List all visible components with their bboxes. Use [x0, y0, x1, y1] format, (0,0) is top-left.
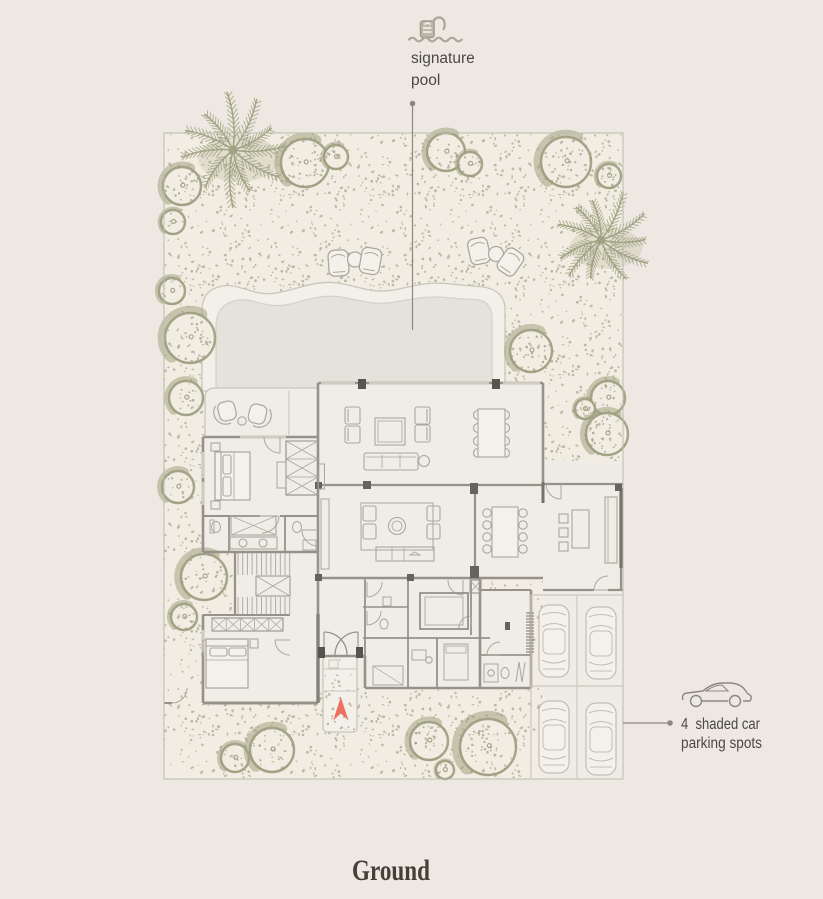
svg-text:Ground: Ground	[352, 854, 430, 887]
svg-text:parking spots: parking spots	[681, 735, 762, 752]
svg-text:pool: pool	[411, 72, 440, 89]
svg-text:4 shaded car: 4 shaded car	[681, 716, 760, 733]
svg-text:signature: signature	[411, 50, 475, 67]
